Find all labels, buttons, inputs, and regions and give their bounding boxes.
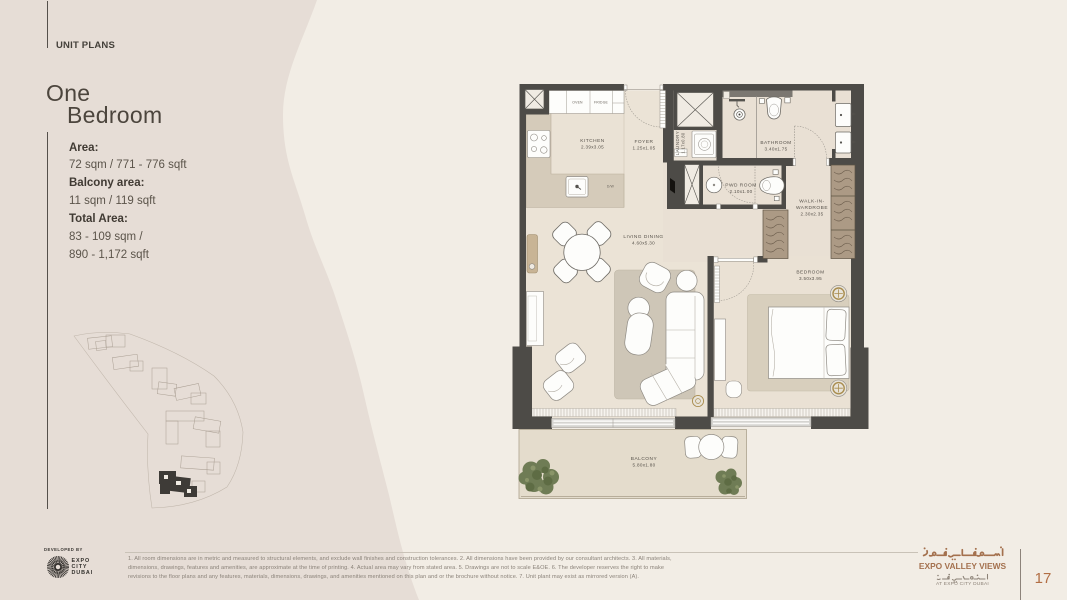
svg-text:BEDROOM: BEDROOM [796, 270, 824, 276]
svg-text:BATHROOM: BATHROOM [760, 140, 791, 146]
svg-text:3.50x3.95: 3.50x3.95 [799, 276, 822, 281]
svg-text:2.10x1.00: 2.10x1.00 [730, 189, 753, 194]
svg-text:LAUNDRY: LAUNDRY [675, 131, 680, 155]
svg-text:2.39x3.05: 2.39x3.05 [581, 145, 604, 150]
svg-text:FRIDGE: FRIDGE [594, 101, 609, 105]
svg-text:2.30x2.35: 2.30x2.35 [801, 212, 824, 217]
svg-text:3.40x1.75: 3.40x1.75 [765, 147, 788, 152]
svg-text:LIVING DINING: LIVING DINING [623, 234, 663, 240]
svg-text:FOYER: FOYER [634, 139, 653, 145]
svg-text:1.17x0.80: 1.17x0.80 [681, 132, 686, 153]
svg-text:PWD ROOM: PWD ROOM [725, 183, 756, 189]
svg-text:KITCHEN: KITCHEN [580, 138, 605, 144]
svg-text:5.80x1.80: 5.80x1.80 [633, 463, 656, 468]
svg-text:BALCONY: BALCONY [631, 456, 658, 462]
svg-text:D/W: D/W [607, 185, 615, 189]
svg-text:WARDROBE: WARDROBE [796, 205, 828, 211]
svg-text:OVEN: OVEN [572, 101, 583, 105]
svg-text:WALK-IN-: WALK-IN- [799, 199, 824, 205]
svg-text:4.60x5.30: 4.60x5.30 [632, 241, 655, 246]
svg-text:1.25x1.05: 1.25x1.05 [633, 146, 656, 151]
